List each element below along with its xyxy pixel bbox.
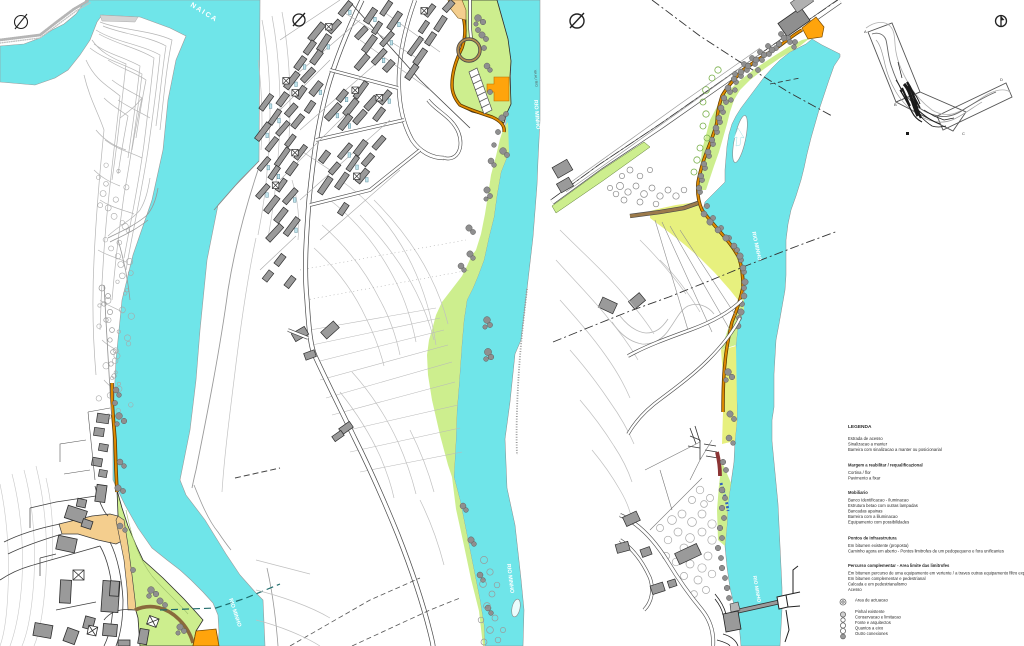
svg-text:Estrutura betao com outras lam: Estrutura betao com outras lampadas [848, 503, 918, 508]
svg-text:Equipamento com possibilidades: Equipamento com possibilidades [848, 520, 909, 525]
svg-text:Barreira com a liluminacao: Barreira com a liluminacao [848, 514, 898, 519]
svg-text:C: C [962, 131, 965, 136]
svg-text:Calcada e em pedestrianalismo: Calcada e em pedestrianalismo [848, 582, 907, 587]
svg-text:Conservacao e limitacao: Conservacao e limitacao [855, 615, 902, 620]
svg-text:Em bitumen percurso de uma equ: Em bitumen percurso de uma equipamento e… [848, 571, 1024, 576]
svg-text:Cortina / flor: Cortina / flor [848, 470, 871, 475]
svg-text:A: A [864, 29, 867, 34]
svg-text:Sinalizacao a manter: Sinalizacao a manter [848, 442, 888, 447]
svg-text:Em bitumen existente (proposta: Em bitumen existente (proposta) [848, 543, 909, 548]
svg-text:Pontos de infraestrutura: Pontos de infraestrutura [848, 536, 897, 541]
svg-text:Mobiliario: Mobiliario [848, 490, 868, 495]
svg-text:LEGENDA: LEGENDA [848, 424, 872, 430]
svg-text:Pavimento a fixar: Pavimento a fixar [848, 476, 881, 481]
svg-text:B: B [894, 102, 897, 107]
svg-text:Em bitumen complementar e pede: Em bitumen complementar e pedestrianal [848, 576, 926, 581]
svg-text:Caminho agora em aberto - Pont: Caminho agora em aberto - Pontos limitro… [848, 549, 1004, 554]
svg-text:Quantos a eixo: Quantos a eixo [855, 626, 884, 631]
svg-text:Banco Identificacao - Iluminac: Banco Identificacao - Iluminacao [848, 498, 909, 503]
svg-text:Area de actuacao: Area de actuacao [855, 598, 888, 603]
svg-text:Barreira com sinalizacao a man: Barreira com sinalizacao a manter ou pos… [848, 447, 942, 452]
svg-text:Acesso: Acesso [848, 587, 862, 592]
svg-text:Estrada de acesso: Estrada de acesso [848, 436, 883, 441]
svg-text:Pinhal existente: Pinhal existente [855, 609, 885, 614]
svg-text:D: D [1000, 77, 1003, 82]
svg-text:Percurso complementar - Area l: Percurso complementar - Area limite das … [848, 563, 950, 568]
svg-text:Margem a reabilitar / requalif: Margem a reabilitar / requalificazional [848, 463, 923, 468]
svg-text:Fonte e arquitectos: Fonte e arquitectos [855, 620, 891, 625]
svg-text:Bancadas apainas: Bancadas apainas [848, 509, 882, 514]
svg-text:Outro conexiones: Outro conexiones [855, 631, 888, 636]
